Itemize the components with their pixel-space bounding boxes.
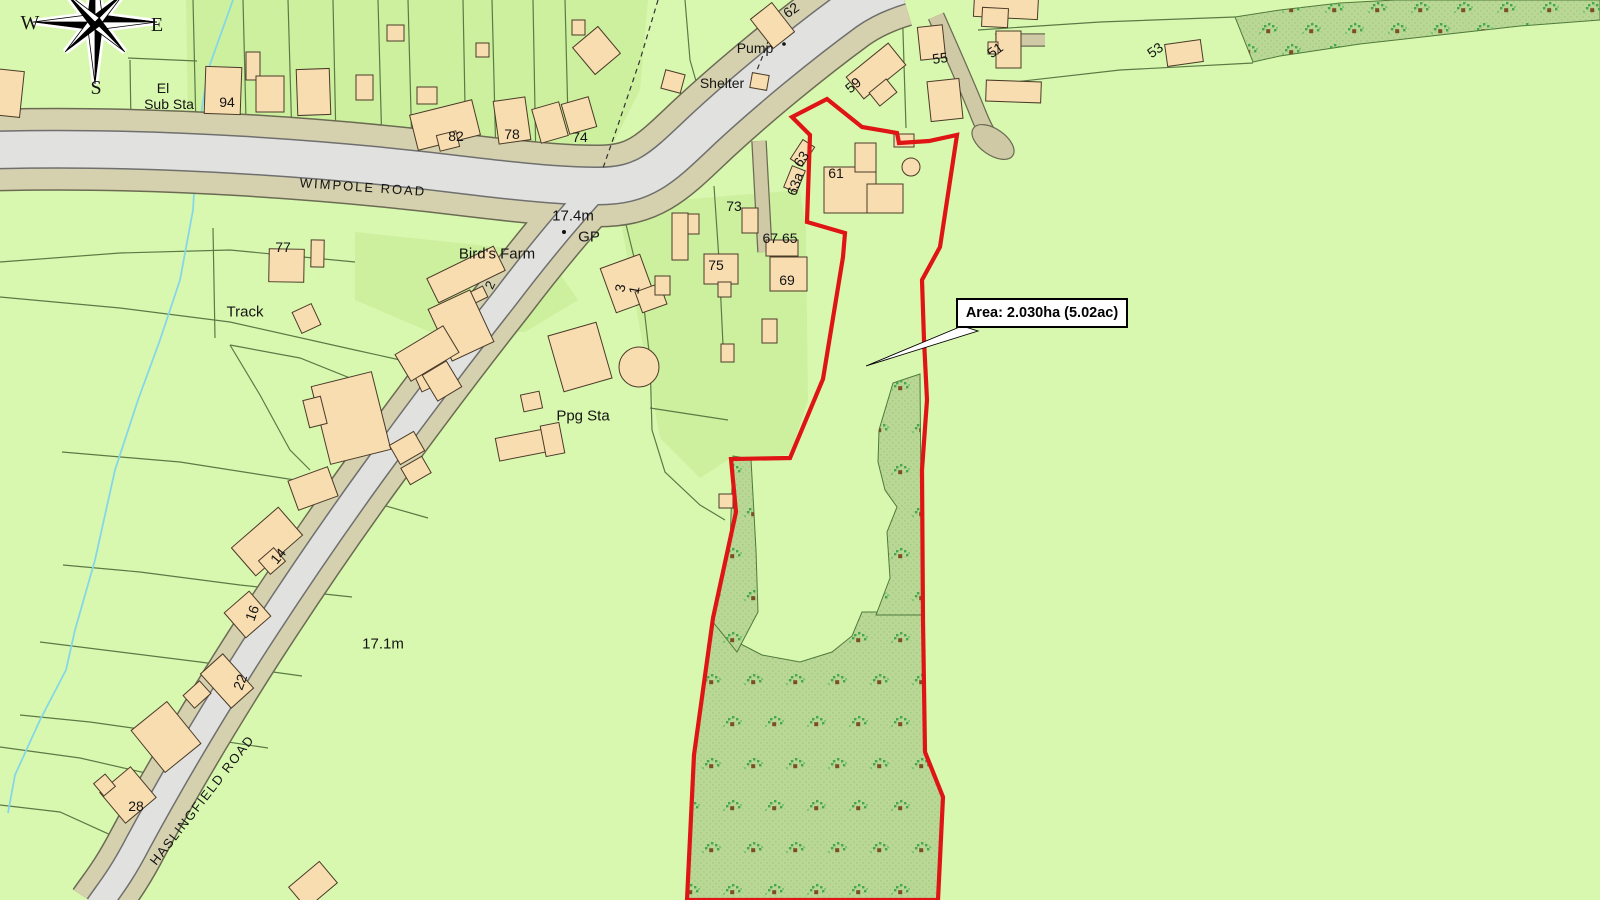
compass-letter-W: W (21, 12, 40, 34)
map-label-shelter: Shelter (700, 75, 745, 91)
map-label-73: 73 (726, 198, 742, 214)
map-label-75: 75 (708, 257, 724, 273)
map-label-94: 94 (219, 94, 235, 110)
area-annotation: Area: 2.030ha (5.02ac) (956, 298, 1128, 328)
compass-letter-E: E (151, 14, 163, 36)
map-label-74: 74 (572, 129, 588, 145)
pump-dot (782, 42, 786, 46)
map-label-61: 61 (828, 165, 844, 181)
map-label-78: 78 (504, 126, 520, 142)
map-label-69: 69 (779, 272, 795, 288)
map-label-17-4m: 17.4m (552, 208, 594, 225)
map-canvas: WESElSub Sta9482787462PumpShelter5955515… (0, 0, 1600, 900)
map-label-el: El (157, 80, 169, 96)
map-svg: WESElSub Sta9482787462PumpShelter5955515… (0, 0, 1600, 900)
map-label-pump: Pump (737, 40, 774, 56)
map-label-17-1m: 17.1m (362, 636, 404, 653)
compass-letter-S: S (90, 77, 101, 99)
map-label-track: Track (227, 304, 264, 321)
map-label-82: 82 (448, 128, 464, 144)
map-label-77: 77 (275, 239, 291, 255)
map-label-bird-s-farm: Bird's Farm (459, 246, 535, 263)
map-label-67-65: 67 65 (762, 230, 797, 246)
spot-height-dot (562, 230, 566, 234)
map-label-ppg-sta: Ppg Sta (556, 408, 610, 425)
map-label-55: 55 (931, 49, 949, 67)
map-label-gp: GP (578, 229, 600, 246)
map-label-sub-sta: Sub Sta (144, 96, 194, 112)
map-label-28: 28 (128, 798, 144, 814)
